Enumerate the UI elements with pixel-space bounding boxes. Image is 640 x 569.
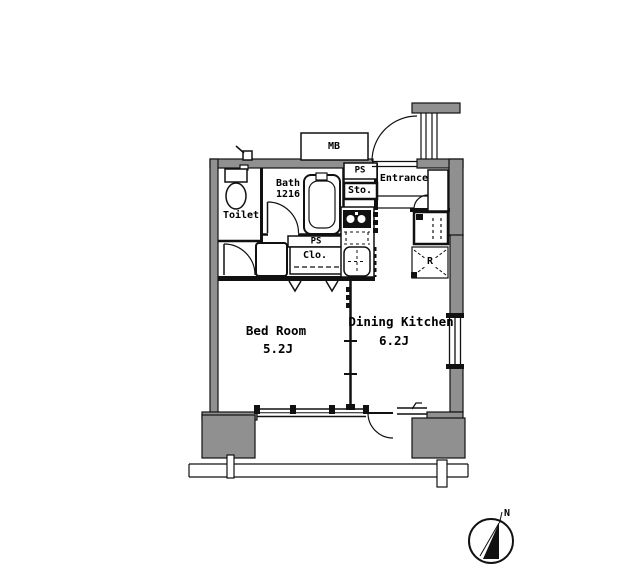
bath-door-arc (268, 202, 299, 233)
washing-machine (256, 243, 287, 276)
floor-plan: Toilet Bath 1216 MB PS Sto. Entrance PS … (0, 0, 640, 569)
entrance-door-arc (372, 116, 417, 161)
toilet-label: Toilet (223, 211, 259, 221)
balcony (189, 455, 468, 487)
dining-kitchen-size-label: 6.2J (379, 335, 409, 348)
corridor-wall-cap (412, 103, 460, 113)
refrigerator-label: R (427, 257, 433, 267)
balcony-pillar-right (412, 418, 465, 458)
dining-kitchen-label: Dining Kitchen (348, 316, 453, 329)
closet-label: Clo. (303, 251, 327, 261)
kitchen (341, 207, 378, 277)
room-partition (344, 281, 357, 410)
pipe-space-closet-label: PS (311, 238, 322, 247)
meter-box-label: MB (328, 142, 340, 152)
toilet-door-arc (224, 244, 255, 275)
balcony-pillar-left (202, 415, 255, 458)
wall-right-mid (450, 235, 463, 318)
storage-square (414, 212, 448, 244)
north-label: N (504, 509, 510, 519)
bath-label: Bath (276, 179, 300, 189)
bathtub (304, 173, 340, 234)
shoe-cabinet (428, 170, 448, 211)
wall-left (210, 159, 218, 420)
balcony-post (227, 455, 234, 478)
corridor-railing (421, 113, 437, 159)
balcony-drain-pipe (437, 460, 447, 487)
floor-plan-drawing (0, 0, 640, 569)
pipe-space-label: PS (355, 167, 366, 176)
entrance-label: Entrance (380, 174, 428, 184)
bath-size-label: 1216 (276, 190, 300, 200)
toilet-fixture (225, 165, 248, 209)
bedroom-size-label: 5.2J (263, 343, 293, 356)
bedroom-label: Bed Room (246, 325, 306, 338)
balcony-door-arc (368, 413, 393, 438)
storage-label: Sto. (348, 186, 372, 196)
wall-right-upper (449, 159, 463, 236)
compass (469, 512, 513, 563)
wall-right-lower (450, 366, 463, 412)
closet-door-marks (289, 281, 338, 291)
vent-mark (236, 146, 252, 160)
dk-small-window (397, 403, 427, 414)
